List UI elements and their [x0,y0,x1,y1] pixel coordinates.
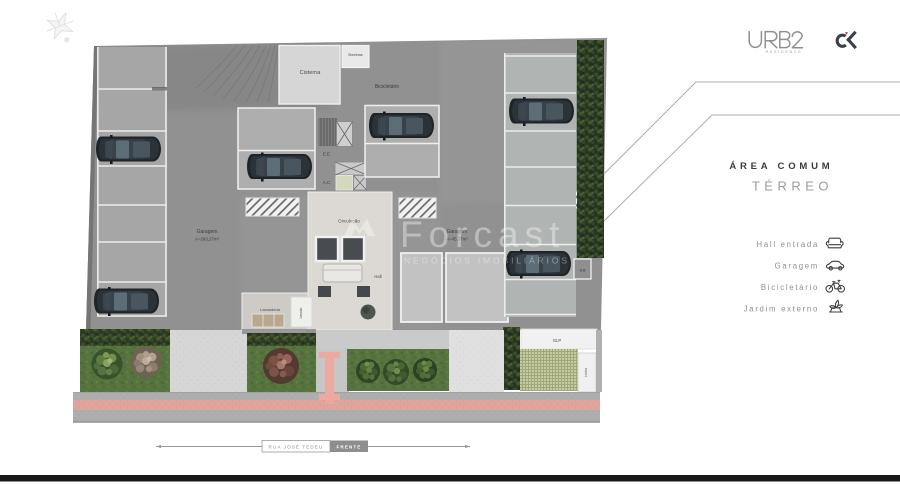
svg-text:RESIDENCE: RESIDENCE [766,50,803,54]
svg-text:A=293,27m²: A=293,27m² [195,237,220,242]
svg-text:Circulação: Circulação [338,219,360,224]
svg-text:E.E.: E.E. [323,152,331,157]
svg-text:Garagem: Garagem [775,262,819,271]
svg-text:Lavanderia: Lavanderia [260,307,281,312]
svg-text:Hall: Hall [374,274,381,279]
svg-text:Bicicletário: Bicicletário [375,84,399,90]
svg-text:GLP: GLP [553,338,562,343]
svg-text:RUA JOSÉ TEDEU: RUA JOSÉ TEDEU [269,444,324,450]
svg-text:NEGÓCIOS IMOBILIÁRIOS: NEGÓCIOS IMOBILIÁRIOS [404,256,570,266]
svg-text:Forcast: Forcast [400,214,565,255]
svg-text:ÁREA COMUM: ÁREA COMUM [729,161,833,172]
svg-text:Bicicletário: Bicicletário [761,283,819,292]
svg-text:FRENTE: FRENTE [337,445,362,450]
svg-text:H.B: H.B [580,269,586,273]
svg-text:Lixeira: Lixeira [584,368,588,378]
svg-text:Jardim externo: Jardim externo [744,305,819,314]
svg-text:TÉRREO: TÉRREO [752,179,833,194]
svg-text:A.C.: A.C. [323,180,331,185]
svg-text:Garagem: Garagem [197,229,218,235]
svg-text:Hall entrada: Hall entrada [757,240,819,249]
svg-text:Lavabo: Lavabo [299,307,303,318]
svg-text:Bombas: Bombas [348,52,362,57]
svg-text:Cisterna: Cisterna [300,70,322,76]
